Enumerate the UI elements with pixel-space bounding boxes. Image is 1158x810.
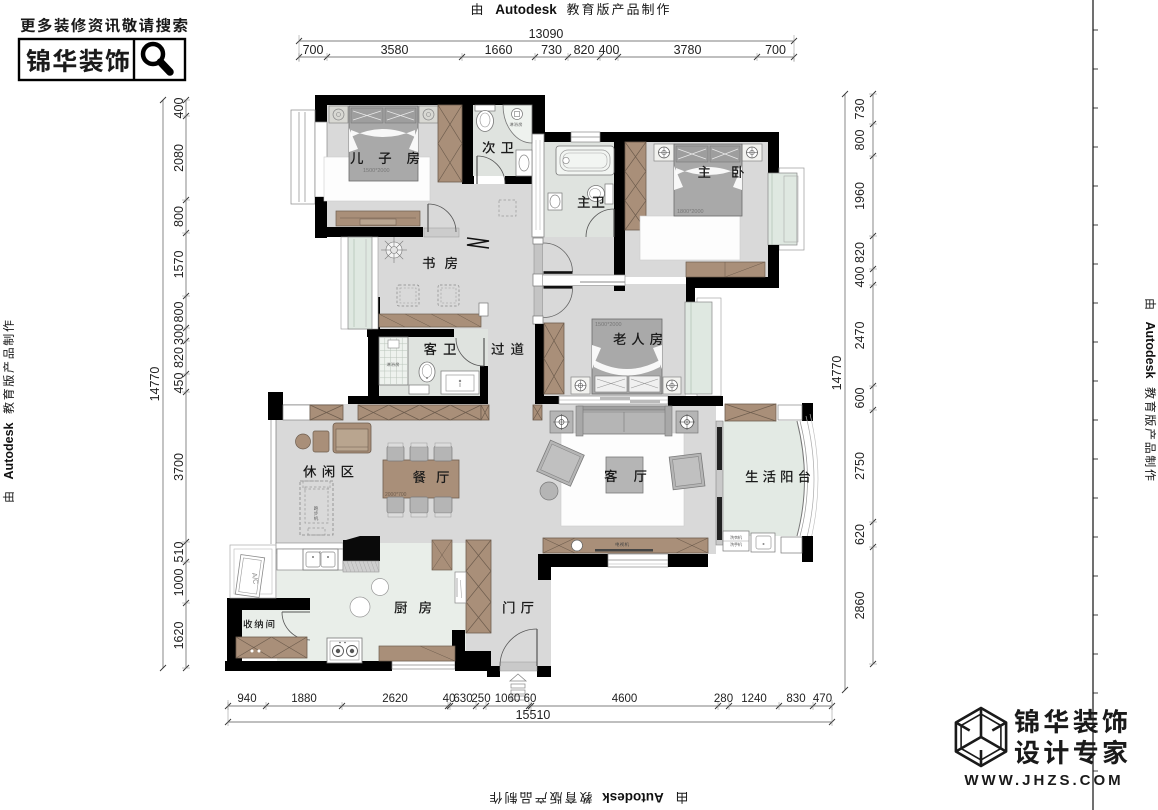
svg-text:2750: 2750: [853, 452, 867, 480]
svg-text:280: 280: [714, 693, 733, 705]
svg-text:820: 820: [172, 347, 186, 368]
svg-text:1500*2000: 1500*2000: [595, 322, 622, 328]
svg-text:400: 400: [172, 98, 186, 119]
svg-text:940: 940: [237, 693, 256, 705]
svg-text:800: 800: [853, 130, 867, 151]
svg-text:730: 730: [541, 43, 562, 57]
svg-text:13090: 13090: [529, 27, 564, 41]
svg-text:14770: 14770: [830, 356, 844, 391]
svg-text:1660: 1660: [485, 43, 513, 57]
svg-text:820: 820: [574, 43, 595, 57]
svg-text:60: 60: [524, 693, 537, 705]
svg-text:800: 800: [172, 302, 186, 323]
svg-text:830: 830: [786, 693, 805, 705]
svg-text:3580: 3580: [381, 43, 409, 57]
svg-text:2470: 2470: [853, 322, 867, 350]
svg-text:1620: 1620: [172, 622, 186, 650]
svg-text:400: 400: [599, 43, 620, 57]
svg-text:450: 450: [172, 373, 186, 394]
svg-text:600: 600: [853, 388, 867, 409]
svg-text:WWW.JHZS.COM: WWW.JHZS.COM: [964, 772, 1123, 789]
svg-text:620: 620: [853, 524, 867, 545]
svg-text:3700: 3700: [172, 453, 186, 481]
svg-text:Autodesk: Autodesk: [2, 422, 16, 479]
svg-text:1570: 1570: [172, 251, 186, 279]
svg-text:2860: 2860: [853, 592, 867, 620]
svg-text:1000: 1000: [172, 569, 186, 597]
svg-text:800: 800: [172, 206, 186, 227]
svg-text:3780: 3780: [674, 43, 702, 57]
svg-text:Autodesk: Autodesk: [495, 2, 557, 17]
svg-text:700: 700: [765, 43, 786, 57]
svg-text:510: 510: [172, 542, 186, 563]
svg-text:470: 470: [813, 693, 832, 705]
svg-text:1240: 1240: [741, 693, 767, 705]
svg-text:1800*2000: 1800*2000: [677, 209, 704, 215]
svg-text:1880: 1880: [291, 693, 317, 705]
svg-text:1500*2000: 1500*2000: [363, 168, 390, 174]
svg-text:2620: 2620: [382, 693, 408, 705]
svg-text:300: 300: [172, 324, 186, 345]
svg-text:700: 700: [303, 43, 324, 57]
svg-text:15510: 15510: [516, 708, 551, 722]
svg-text:1960: 1960: [853, 182, 867, 210]
svg-text:2080: 2080: [172, 144, 186, 172]
svg-text:400: 400: [853, 267, 867, 288]
svg-text:730: 730: [853, 99, 867, 120]
svg-text:4600: 4600: [612, 693, 638, 705]
svg-text:1060: 1060: [495, 693, 521, 705]
svg-text:Autodesk: Autodesk: [602, 790, 664, 805]
svg-text:820: 820: [853, 242, 867, 263]
svg-text:250: 250: [471, 693, 490, 705]
svg-text:Autodesk: Autodesk: [1143, 322, 1157, 379]
svg-text:630: 630: [453, 693, 472, 705]
svg-text:14770: 14770: [148, 367, 162, 402]
